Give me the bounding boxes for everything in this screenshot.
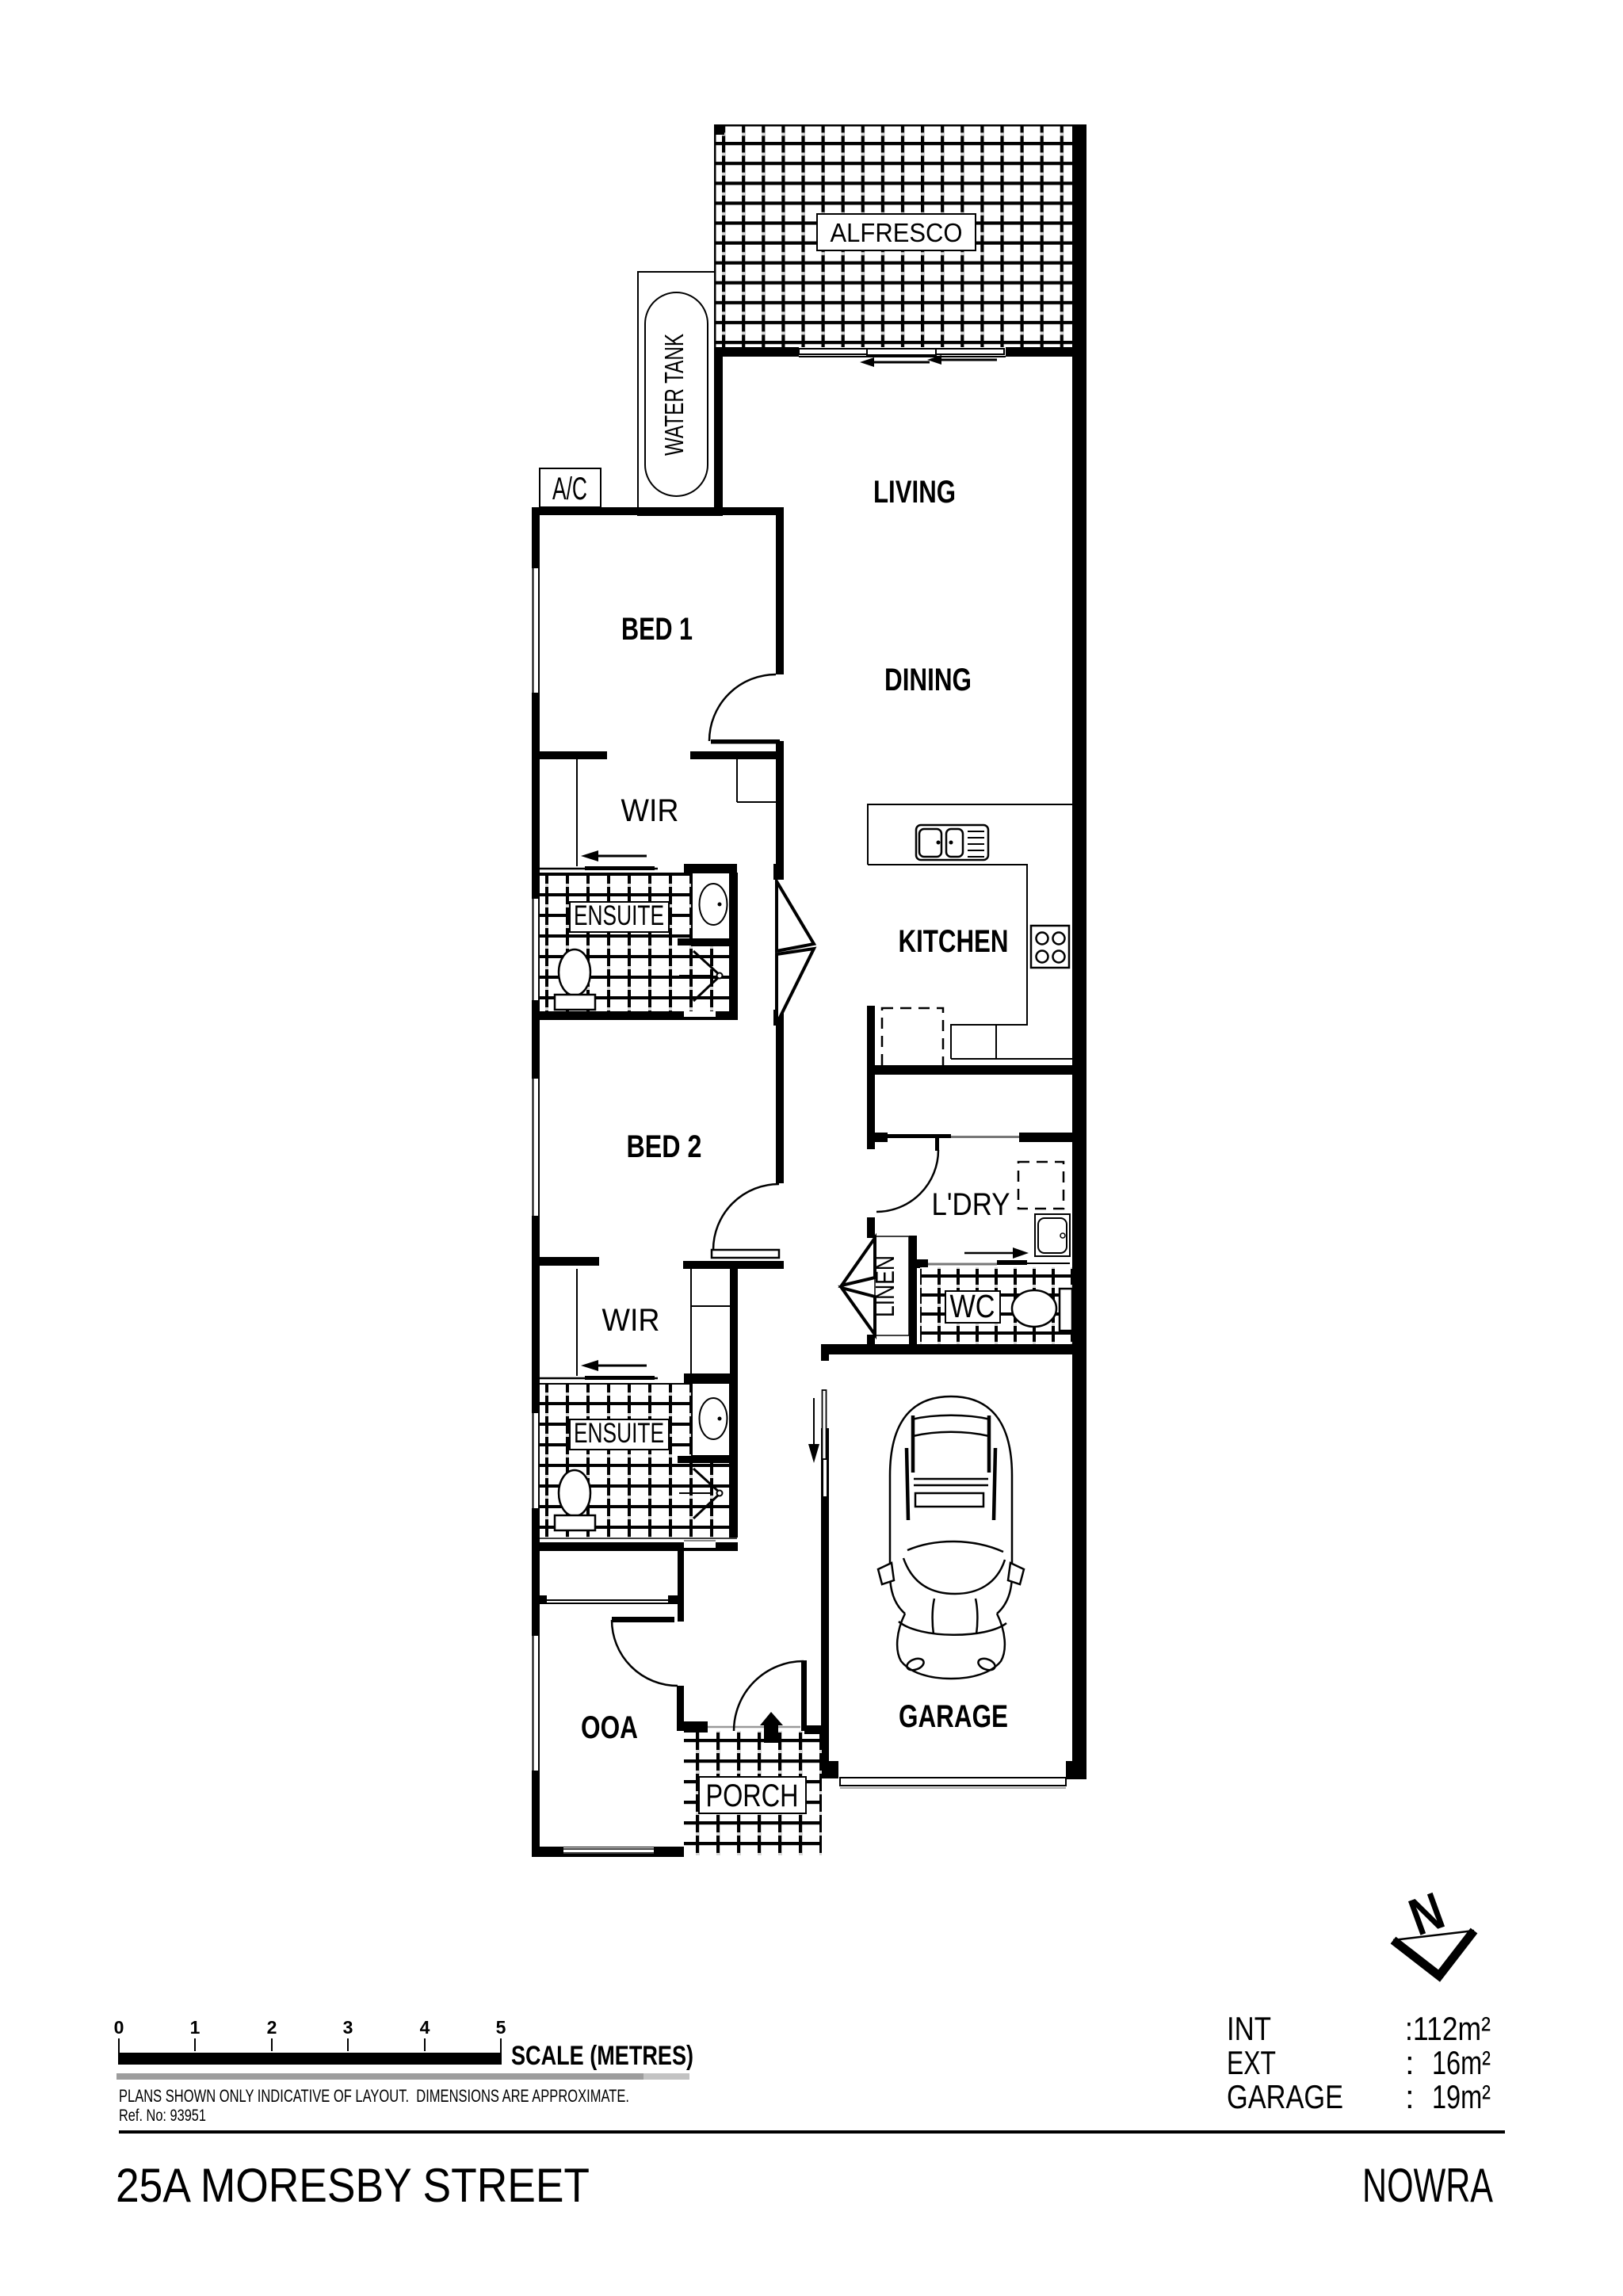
svg-text:WATER TANK: WATER TANK [659,334,689,456]
svg-text:25A MORESBY STREET: 25A MORESBY STREET [116,2159,590,2212]
svg-text:0: 0 [114,2017,124,2038]
svg-text:16m²: 16m² [1432,2044,1491,2081]
svg-text:LIVING: LIVING [873,475,956,510]
svg-text:PLANS SHOWN ONLY INDICATIVE OF: PLANS SHOWN ONLY INDICATIVE OF LAYOUT. D… [119,2086,629,2106]
svg-text:SCALE (METRES): SCALE (METRES) [511,2041,693,2071]
svg-text:ENSUITE: ENSUITE [574,1418,664,1449]
svg-text:DINING: DINING [884,663,972,697]
svg-text:KITCHEN: KITCHEN [899,924,1009,959]
svg-text:Ref. No: 93951: Ref. No: 93951 [119,2107,206,2125]
svg-text:3: 3 [343,2017,353,2038]
svg-text:19m²: 19m² [1432,2078,1491,2115]
svg-text:1: 1 [190,2017,200,2038]
svg-text:PORCH: PORCH [706,1778,799,1813]
svg-text:BED 2: BED 2 [627,1129,702,1164]
svg-text:4: 4 [420,2017,430,2038]
svg-text::: : [1405,2044,1415,2081]
svg-text:WIR: WIR [621,793,679,828]
svg-text:2: 2 [267,2017,277,2038]
svg-text:A/C: A/C [552,472,587,506]
svg-text:INT: INT [1227,2010,1271,2047]
svg-text:OOA: OOA [581,1710,638,1745]
svg-text:BED 1: BED 1 [621,612,693,647]
svg-text:GARAGE: GARAGE [899,1699,1008,1734]
svg-text::112m²: :112m² [1405,2010,1491,2047]
svg-text:L'DRY: L'DRY [932,1187,1010,1222]
svg-text:5: 5 [496,2017,506,2038]
svg-text:NOWRA: NOWRA [1362,2159,1493,2212]
svg-text::: : [1405,2078,1415,2115]
svg-text:WIR: WIR [602,1303,660,1338]
svg-text:EXT: EXT [1227,2044,1276,2081]
svg-text:ENSUITE: ENSUITE [574,900,664,931]
svg-text:ALFRESCO: ALFRESCO [831,218,963,247]
svg-text:GARAGE: GARAGE [1227,2078,1343,2115]
svg-text:WC: WC [950,1288,995,1324]
